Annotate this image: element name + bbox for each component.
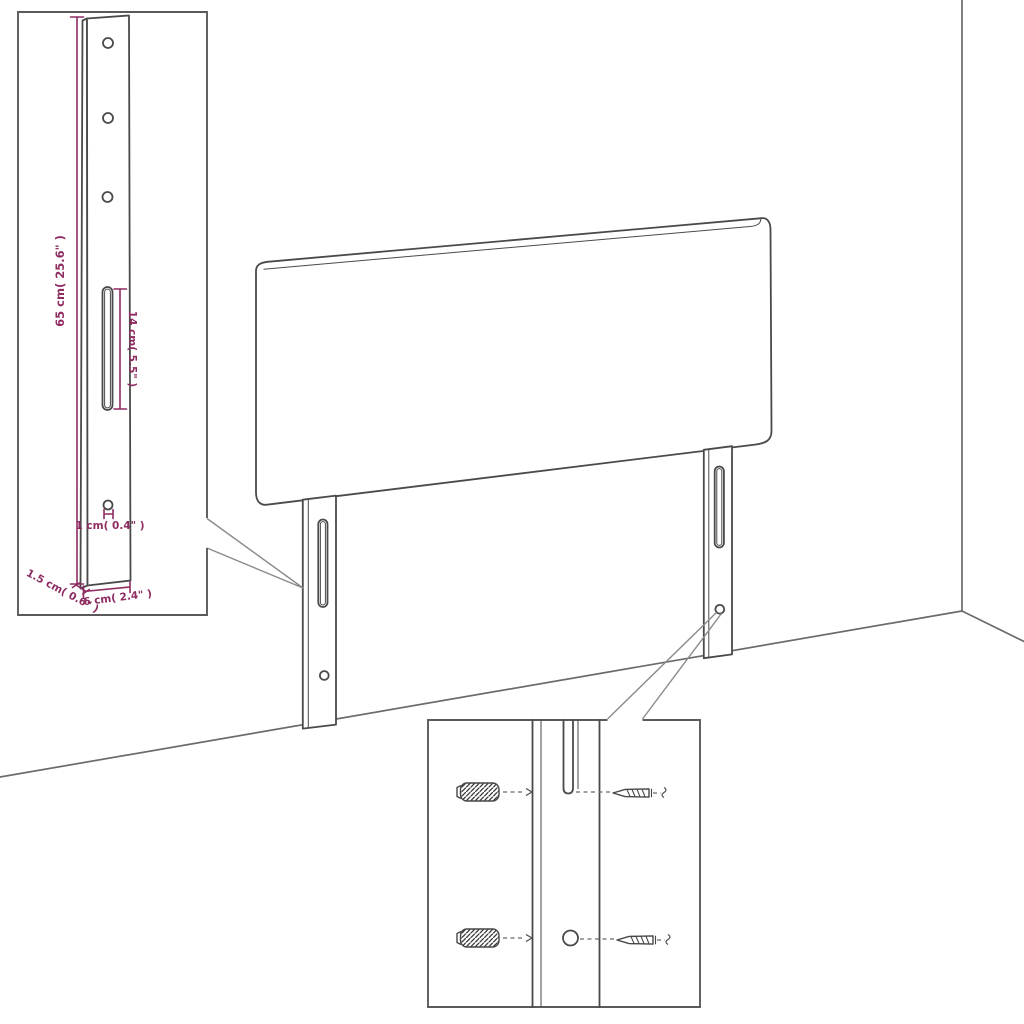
headboard-panel: [256, 218, 772, 505]
right-mounting-leg: [704, 446, 732, 658]
left-leg-hole: [320, 671, 329, 680]
left-leg-slot: [318, 520, 327, 608]
plug-top-arrow: [526, 789, 532, 796]
right-leg-hole: [715, 605, 724, 614]
wall-plug-bottom: [457, 929, 499, 947]
dim-label-slot: 14 cm( 5.5" ): [126, 311, 138, 387]
wall-plug-top: [457, 783, 499, 801]
left-mounting-leg: [303, 496, 336, 729]
bracket-callout-wedge: [207, 519, 303, 589]
inset-bracket-detail: 65 cm( 25.6" ) 14 cm( 5.5" ) 1 cm( 0.4" …: [18, 12, 207, 616]
bracket-hole-2: [103, 113, 113, 123]
headboard-assembly-diagram: 65 cm( 25.6" ) 14 cm( 5.5" ) 1 cm( 0.4" …: [0, 0, 1024, 1024]
bracket-slot: [103, 287, 113, 410]
floor-line-left: [0, 611, 962, 777]
inset-mounting-detail: [428, 720, 700, 1007]
dim-label-hole: 1 cm( 0.4" ): [75, 520, 144, 532]
bracket-hole-1: [103, 38, 113, 48]
screw-top: [613, 788, 666, 798]
bracket-small-hole: [104, 501, 113, 510]
screw-bottom: [617, 935, 670, 945]
dim-label-height: 65 cm( 25.6" ): [53, 235, 67, 327]
right-leg-slot: [715, 467, 724, 548]
detail-slot: [564, 720, 574, 794]
bracket-hole-3: [103, 192, 113, 202]
plug-bottom-arrow: [526, 935, 532, 942]
diagram-canvas: 65 cm( 25.6" ) 14 cm( 5.5" ) 1 cm( 0.4" …: [0, 0, 1024, 1024]
headboard: [256, 218, 772, 728]
floor-line-right: [962, 611, 1024, 642]
callout-lines: [207, 519, 722, 720]
detail-hole: [563, 931, 578, 946]
